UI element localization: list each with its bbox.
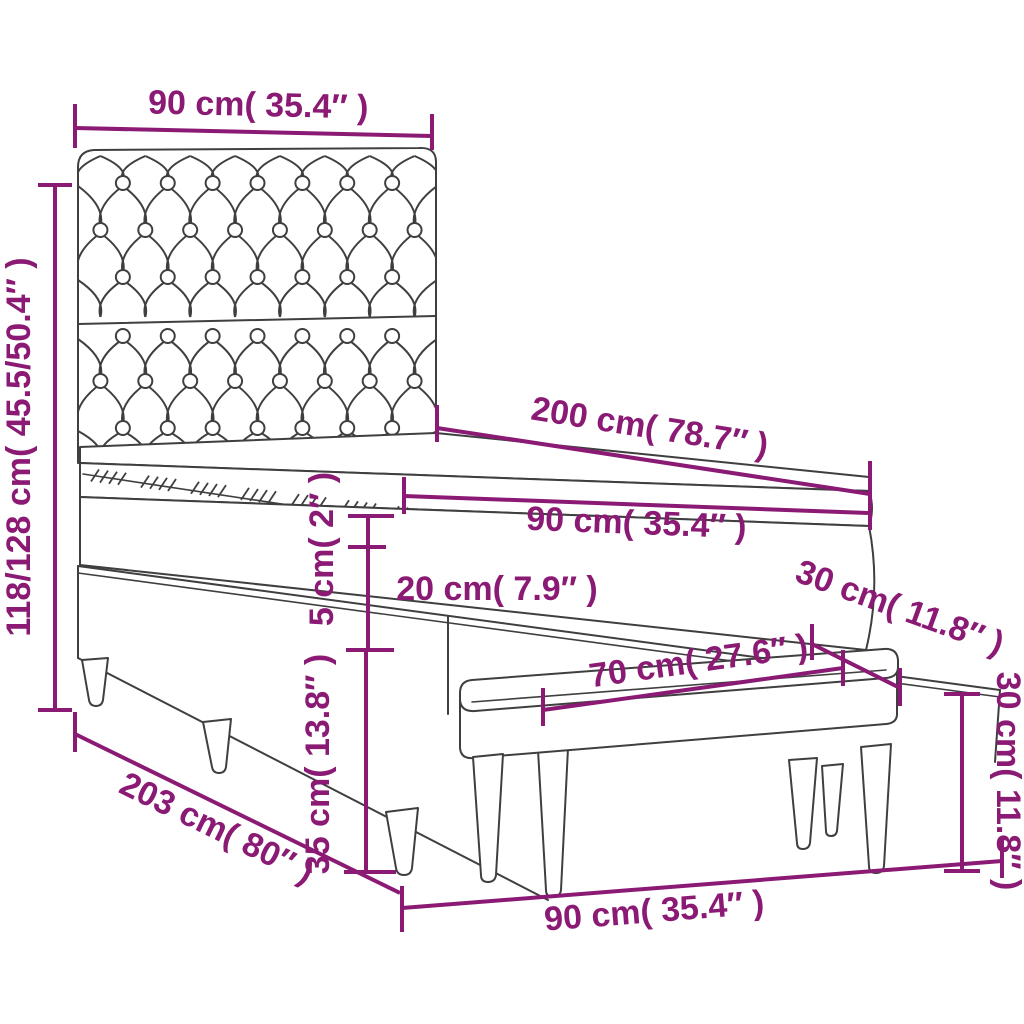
dim-bed-height-label: 118/128 cm( 45.5/50.4″ ) [0, 257, 38, 636]
dim-headboard-width-label: 90 cm( 35.4″ ) [148, 84, 369, 127]
dim-bed-width-label: 90 cm( 35.4″ ) [543, 883, 766, 938]
headboard [77, 148, 438, 463]
dim-bench-height: 30 cm( 11.8″ ) [944, 672, 1024, 891]
bench-leg [538, 748, 568, 897]
bed-leg [386, 808, 418, 875]
dim-total-length: 203 cm( 80″ ) [75, 712, 402, 932]
dimension-diagram: 90 cm( 35.4″ ) 118/128 cm( 45.5/50.4″ ) … [0, 0, 1024, 1024]
bench-leg [789, 758, 817, 849]
dim-base-height-label: 35 cm( 13.8″ ) [299, 654, 337, 874]
dim-topper-thickness-label: 5 cm( 2″ ) [303, 472, 341, 626]
dim-total-length-label: 203 cm( 80″ ) [114, 765, 320, 892]
bed-leg [203, 719, 231, 773]
bench-leg [861, 744, 891, 873]
dim-mattress-thickness-label: 20 cm( 7.9″ ) [396, 570, 598, 608]
dim-bench-height-label: 30 cm( 11.8″ ) [989, 672, 1024, 891]
diagram-canvas: 90 cm( 35.4″ ) 118/128 cm( 45.5/50.4″ ) … [0, 0, 1024, 1024]
dim-bed-height: 118/128 cm( 45.5/50.4″ ) [0, 185, 72, 710]
bed-leg [82, 658, 108, 706]
bench-leg [822, 764, 843, 836]
dim-headboard-width: 90 cm( 35.4″ ) [75, 84, 432, 150]
bench [460, 649, 898, 897]
